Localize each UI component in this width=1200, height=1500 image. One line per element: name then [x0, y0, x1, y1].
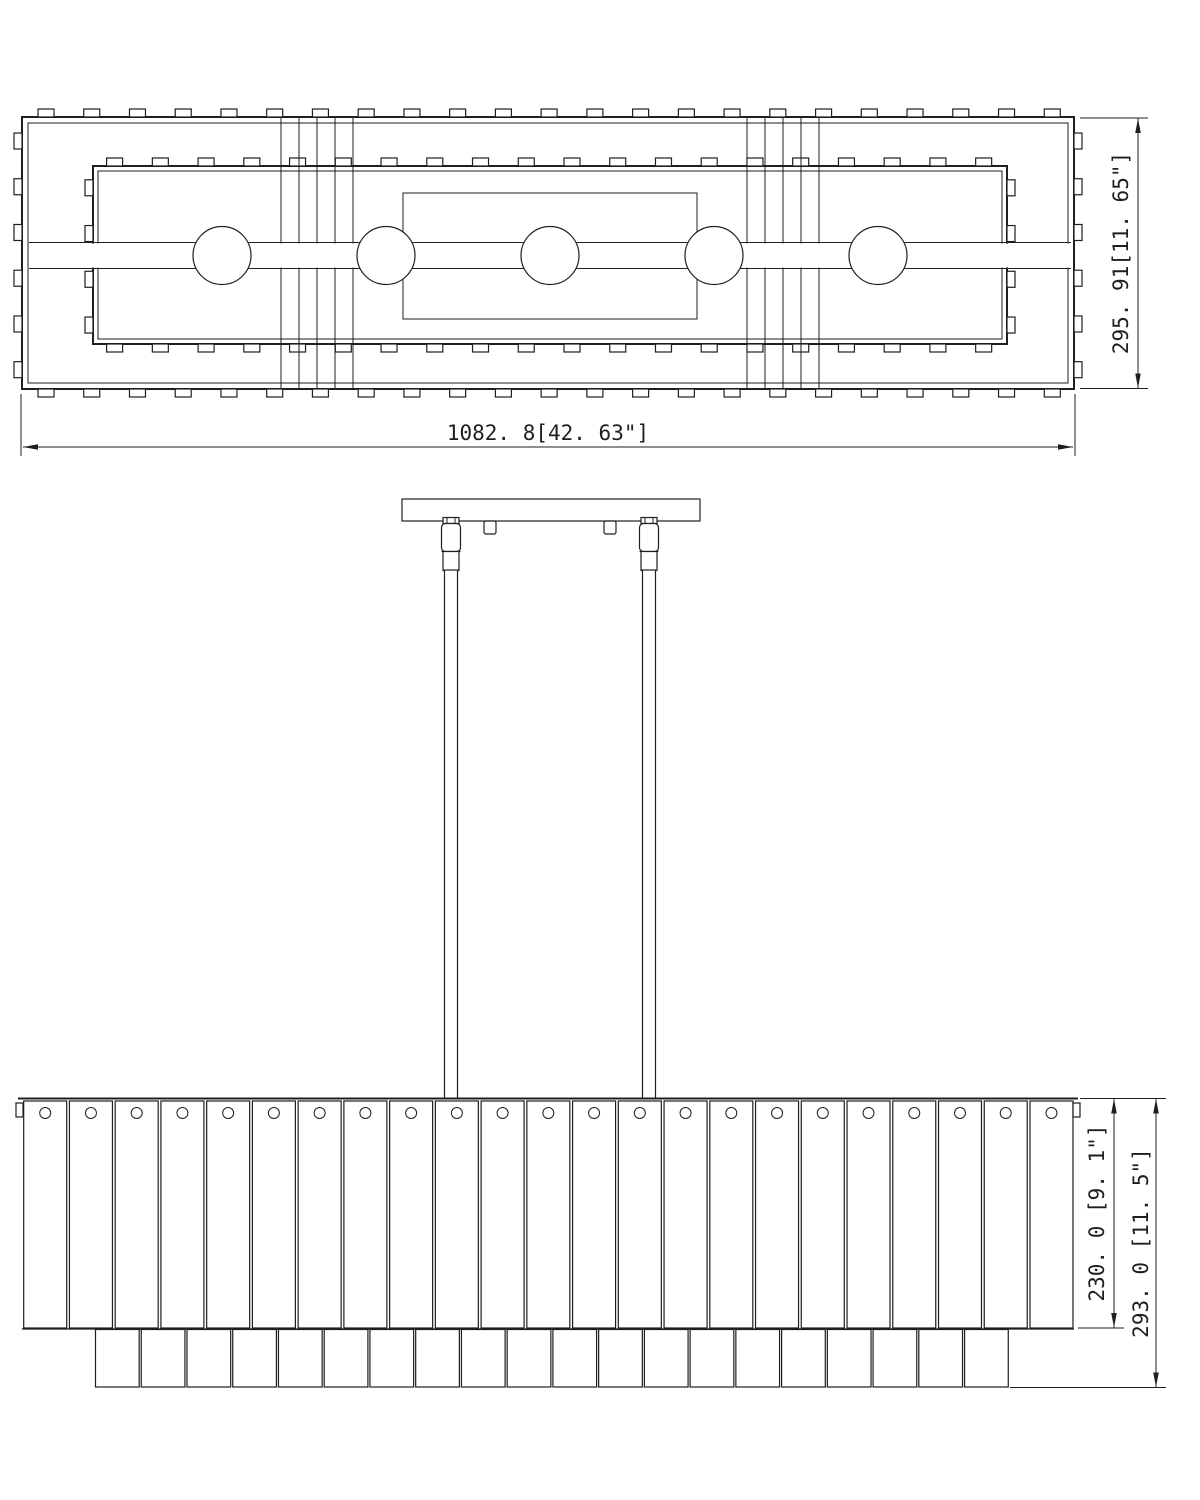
- inner-slat: [553, 1330, 597, 1388]
- slat-tab: [244, 158, 260, 166]
- slat-tab: [838, 158, 854, 166]
- lamp-circle: [357, 227, 415, 285]
- slat-tab: [107, 344, 123, 352]
- lamp-circle: [193, 227, 251, 285]
- inner-slat: [507, 1330, 551, 1388]
- slat: [710, 1101, 753, 1328]
- slat-tab: [85, 180, 93, 196]
- hanger-body: [442, 524, 461, 552]
- slat-tab: [473, 158, 489, 166]
- slat-tab: [84, 109, 100, 117]
- arrow-left-icon: [23, 444, 38, 450]
- slat-tab: [564, 344, 580, 352]
- inner-slat: [187, 1330, 231, 1388]
- slat-tab: [38, 109, 54, 117]
- slat-tab: [518, 344, 534, 352]
- slat-tab: [724, 389, 740, 397]
- slat-tab: [244, 344, 260, 352]
- inner-slat: [644, 1330, 688, 1388]
- slat-tab: [861, 389, 877, 397]
- slat-tab: [884, 158, 900, 166]
- slat-tab: [198, 344, 214, 352]
- slat-tab: [976, 158, 992, 166]
- slat-tab: [1074, 133, 1082, 149]
- slat: [939, 1101, 982, 1328]
- slat-tab: [267, 389, 283, 397]
- slat-tab: [290, 344, 306, 352]
- slat-tab: [633, 109, 649, 117]
- inner-slat: [873, 1330, 917, 1388]
- slat-tab: [541, 389, 557, 397]
- slat-tab: [953, 389, 969, 397]
- outer-slat-row: [24, 1101, 1073, 1328]
- plan-view-dimensions: 295. 91[11. 65"] 1082. 8[42. 63"]: [21, 118, 1148, 456]
- slat-tab: [84, 389, 100, 397]
- lamp-circle: [685, 227, 743, 285]
- slat-tab: [175, 389, 191, 397]
- slat-tab: [587, 389, 603, 397]
- slat-tab: [678, 109, 694, 117]
- slat: [481, 1101, 524, 1328]
- slat-tab: [14, 133, 22, 149]
- slat-tab: [312, 389, 328, 397]
- slat-tab: [1007, 271, 1015, 287]
- slat-tab: [85, 226, 93, 242]
- slat-tab: [175, 109, 191, 117]
- inner-slat: [324, 1330, 368, 1388]
- arrow-down-icon: [1135, 374, 1141, 389]
- slat: [298, 1101, 341, 1328]
- slat: [756, 1101, 799, 1328]
- slat-tab: [1044, 389, 1060, 397]
- slat-tab: [747, 344, 763, 352]
- slat: [618, 1101, 661, 1328]
- hanger-rod: [445, 570, 458, 1099]
- slat: [344, 1101, 387, 1328]
- slat-tab: [335, 344, 351, 352]
- slat-tab: [678, 389, 694, 397]
- slat-tab: [999, 109, 1015, 117]
- inner-slat: [965, 1330, 1009, 1388]
- slat-tab: [495, 109, 511, 117]
- slat-tab: [1074, 179, 1082, 195]
- slat-tab: [198, 158, 214, 166]
- slat-tab: [1074, 316, 1082, 332]
- slat-tab: [610, 344, 626, 352]
- canopy-tab: [484, 521, 496, 534]
- width-dim-label: 1082. 8[42. 63"]: [447, 421, 649, 445]
- inner-slat: [461, 1330, 505, 1388]
- inner-slat: [416, 1330, 460, 1388]
- slat-tab: [770, 389, 786, 397]
- inner-slat-row: [96, 1330, 1009, 1388]
- slat-tab: [701, 158, 717, 166]
- lamp-circle: [849, 227, 907, 285]
- arrow-up-icon: [1135, 119, 1141, 134]
- slat-tab: [747, 158, 763, 166]
- hanger-rod: [643, 570, 656, 1099]
- slat: [390, 1101, 433, 1328]
- elevation-view: [16, 499, 1080, 1387]
- slat: [435, 1101, 478, 1328]
- inner-slat: [919, 1330, 963, 1388]
- slat-tab: [450, 389, 466, 397]
- arrow-down-icon: [1153, 1373, 1159, 1388]
- slat-tab: [907, 109, 923, 117]
- slat: [1030, 1101, 1073, 1328]
- slat-tab: [724, 109, 740, 117]
- slat-tab: [335, 158, 351, 166]
- slat-tab: [85, 317, 93, 333]
- slat-tab: [85, 271, 93, 287]
- slat-tab: [816, 389, 832, 397]
- slat-tab: [655, 158, 671, 166]
- slat-tab: [1007, 226, 1015, 242]
- hanger-coupler: [641, 552, 657, 571]
- hanger-coupler: [443, 552, 459, 571]
- slat-tab: [861, 109, 877, 117]
- inner-slat: [599, 1330, 643, 1388]
- slat: [847, 1101, 890, 1328]
- height-dim-label: 295. 91[11. 65"]: [1109, 152, 1133, 354]
- slat-tab: [129, 109, 145, 117]
- slat-tab: [701, 344, 717, 352]
- slat-tab: [655, 344, 671, 352]
- slat-tab: [427, 158, 443, 166]
- technical-drawing-sheet: 295. 91[11. 65"] 1082. 8[42. 63"] 230. 0…: [0, 0, 1200, 1500]
- slat: [893, 1101, 936, 1328]
- slat-tab: [14, 270, 22, 286]
- slat-tab: [14, 362, 22, 378]
- inner-slat: [96, 1330, 140, 1388]
- slat: [115, 1101, 158, 1328]
- slat: [161, 1101, 204, 1328]
- arrow-down-icon: [1111, 1313, 1117, 1328]
- lamp-circle: [521, 227, 579, 285]
- slat-tab: [838, 344, 854, 352]
- slat-tab: [610, 158, 626, 166]
- slat-tab: [129, 389, 145, 397]
- slat-tab: [312, 109, 328, 117]
- slat-tab: [1007, 317, 1015, 333]
- slat-tab: [907, 389, 923, 397]
- slat-tab: [221, 109, 237, 117]
- slat-tab: [541, 109, 557, 117]
- slat-tab: [1007, 180, 1015, 196]
- plan-view: [14, 109, 1082, 397]
- slat-tab: [152, 158, 168, 166]
- slat-tab: [358, 389, 374, 397]
- slat: [69, 1101, 112, 1328]
- inner-slat: [233, 1330, 277, 1388]
- slat-tab: [381, 344, 397, 352]
- slat-tab: [290, 158, 306, 166]
- shade-height-dim-label: 230. 0 [9. 1"]: [1085, 1124, 1109, 1301]
- slat-tab: [495, 389, 511, 397]
- inner-slat: [736, 1330, 780, 1388]
- slat-tab: [1074, 270, 1082, 286]
- slat-tab: [14, 316, 22, 332]
- slat-tab: [38, 389, 54, 397]
- slat-tab: [633, 389, 649, 397]
- slat-tab: [152, 344, 168, 352]
- slat-tab: [381, 158, 397, 166]
- arrow-right-icon: [1058, 444, 1073, 450]
- slat-tab: [518, 158, 534, 166]
- hanger-locknut: [641, 518, 657, 524]
- slat-tab: [404, 389, 420, 397]
- slat-tab: [1074, 224, 1082, 240]
- slat-tab: [107, 158, 123, 166]
- slat-tab: [267, 109, 283, 117]
- slat-tab: [427, 344, 443, 352]
- slat-tab: [930, 344, 946, 352]
- slat-tab: [884, 344, 900, 352]
- slat: [573, 1101, 616, 1328]
- inner-slat: [141, 1330, 185, 1388]
- slat-tab: [976, 344, 992, 352]
- slat-tab: [221, 389, 237, 397]
- slat: [527, 1101, 570, 1328]
- inner-slat: [690, 1330, 734, 1388]
- inner-slat: [370, 1330, 414, 1388]
- inner-slat: [782, 1330, 826, 1388]
- slat: [801, 1101, 844, 1328]
- slat-tab: [450, 109, 466, 117]
- slat-tab: [404, 109, 420, 117]
- slat-tab: [587, 109, 603, 117]
- slat-tab: [358, 109, 374, 117]
- left-end-tab: [16, 1103, 23, 1117]
- inner-slat: [278, 1330, 322, 1388]
- overall-height-dim-label: 293. 0 [11. 5"]: [1129, 1148, 1153, 1338]
- slat: [664, 1101, 707, 1328]
- slat-tab: [930, 158, 946, 166]
- slat-tab: [999, 389, 1015, 397]
- slat-tab: [953, 109, 969, 117]
- slat: [984, 1101, 1027, 1328]
- slat-tab: [473, 344, 489, 352]
- slat-tab: [770, 109, 786, 117]
- slat-tab: [1044, 109, 1060, 117]
- hanger-locknut: [443, 518, 459, 524]
- slat: [207, 1101, 250, 1328]
- drawing-canvas: 295. 91[11. 65"] 1082. 8[42. 63"] 230. 0…: [0, 0, 1200, 1500]
- hanger-body: [640, 524, 659, 552]
- slat-tab: [14, 224, 22, 240]
- hanger-rods: [442, 518, 659, 1099]
- right-end-tab: [1073, 1103, 1080, 1117]
- inner-slat: [827, 1330, 871, 1388]
- arrow-up-icon: [1153, 1099, 1159, 1114]
- slat: [24, 1101, 67, 1328]
- slat-tab: [14, 179, 22, 195]
- slat: [252, 1101, 295, 1328]
- slat-tab: [1074, 362, 1082, 378]
- slat-tab: [564, 158, 580, 166]
- arrow-up-icon: [1111, 1099, 1117, 1114]
- slat-tab: [816, 109, 832, 117]
- canopy-tab: [604, 521, 616, 534]
